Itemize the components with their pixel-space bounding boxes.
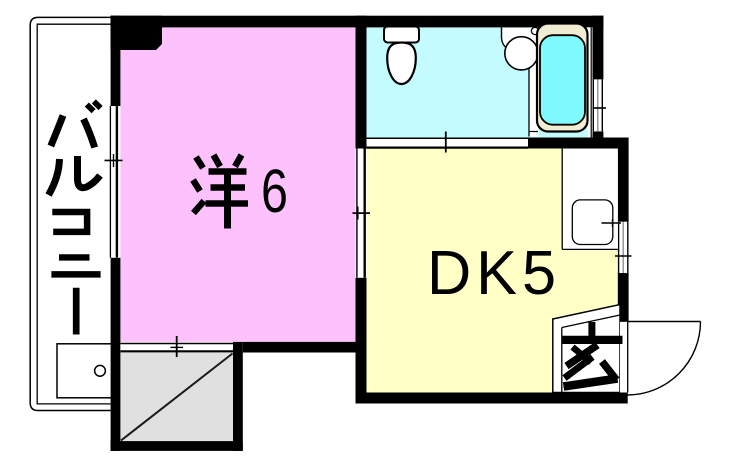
svg-text:6: 6 bbox=[261, 157, 288, 225]
svg-text:DK5: DK5 bbox=[427, 239, 561, 308]
